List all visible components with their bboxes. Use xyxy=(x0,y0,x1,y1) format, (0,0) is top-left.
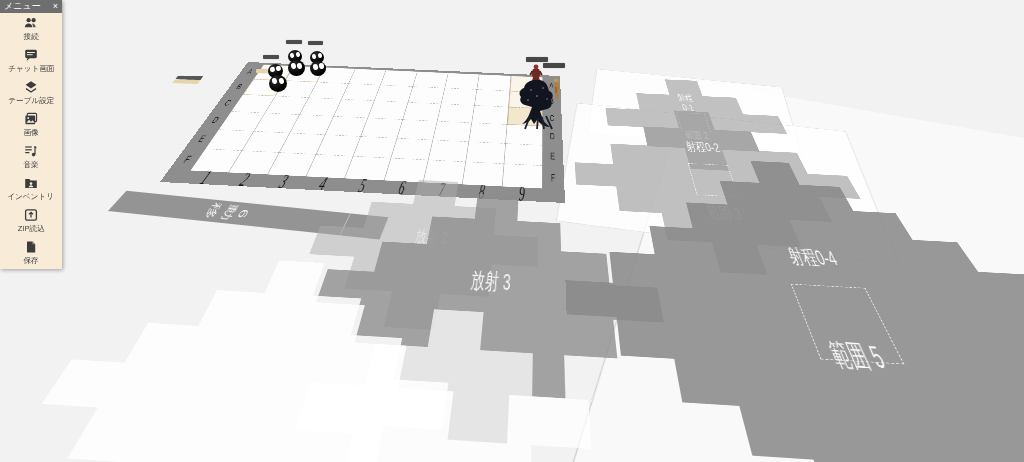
board-cell[interactable] xyxy=(463,162,504,186)
token-eye-icon xyxy=(276,66,282,72)
menu-item-zip-load[interactable]: ZIP読込 xyxy=(0,205,62,237)
menu-item-label: テーブル設定 xyxy=(8,95,54,105)
row-label: D xyxy=(210,115,222,125)
row-label: F xyxy=(551,171,556,183)
board-cell[interactable] xyxy=(428,140,469,162)
tag-cream-strip xyxy=(172,80,200,84)
board-cell[interactable] xyxy=(361,118,403,138)
menu-item-inventory[interactable]: インベントリ xyxy=(0,173,62,205)
menu-item-label: 接続 xyxy=(23,31,38,41)
board-cell[interactable] xyxy=(472,106,508,125)
token-eye-icon xyxy=(290,63,296,70)
token-name-tag[interactable] xyxy=(526,57,548,62)
token-name-tag[interactable] xyxy=(308,41,323,45)
black-ball-token[interactable] xyxy=(288,60,305,76)
board-cell[interactable] xyxy=(475,90,510,108)
game-board[interactable]: A B C D E F A B C D E F 1 2 3 4 5 6 xyxy=(160,62,565,203)
menu-item-images[interactable]: 画像 xyxy=(0,109,62,141)
token-eye-icon xyxy=(295,52,300,58)
zip-upload-icon xyxy=(24,208,38,222)
menu-item-music[interactable]: 音楽 xyxy=(0,141,62,173)
board-cell[interactable] xyxy=(397,120,437,140)
board-cell[interactable] xyxy=(504,144,542,166)
row-label: C xyxy=(222,98,233,107)
menu-item-label: 保存 xyxy=(23,255,38,265)
token-eye-icon xyxy=(270,66,276,72)
row-label: E xyxy=(196,133,208,144)
save-icon xyxy=(24,240,38,254)
token-eye-icon xyxy=(290,52,295,58)
board-cell[interactable] xyxy=(391,138,433,160)
row-label: E xyxy=(550,150,555,161)
token-eye-icon xyxy=(312,64,318,71)
menu-titlebar[interactable]: メニュー × xyxy=(0,0,62,13)
menu-title: メニュー xyxy=(4,0,41,13)
board-cell[interactable] xyxy=(469,123,507,144)
token-eye-icon xyxy=(271,78,278,85)
token-name-tag[interactable] xyxy=(286,40,302,44)
menu-item-label: ZIP読込 xyxy=(17,223,44,233)
menu-item-label: インベントリ xyxy=(8,191,55,201)
token-eye-icon xyxy=(278,77,285,84)
board-cell[interactable] xyxy=(375,85,413,102)
token-eye-icon xyxy=(297,62,303,69)
board-cell[interactable] xyxy=(466,142,505,164)
black-ball-token[interactable] xyxy=(310,61,326,76)
menu-item-label: 音楽 xyxy=(23,159,38,169)
board-cell[interactable] xyxy=(441,88,477,106)
board-cell[interactable] xyxy=(413,72,449,88)
board-cell[interactable] xyxy=(354,137,398,159)
board-cell[interactable] xyxy=(408,87,445,105)
inventory-icon xyxy=(24,176,38,190)
token-name-tag[interactable] xyxy=(543,63,565,68)
black-ball-token[interactable] xyxy=(269,75,287,92)
board-cell[interactable] xyxy=(403,103,442,122)
board-cell[interactable] xyxy=(445,73,480,89)
app-window: A B C D E F A B C D E F 1 2 3 4 5 6 xyxy=(0,0,1024,462)
board-cell[interactable] xyxy=(368,101,408,120)
music-icon xyxy=(24,144,38,158)
board-cell[interactable] xyxy=(502,164,542,188)
burst-3-label: 放射 3 xyxy=(469,268,511,296)
menu-item-label: 画像 xyxy=(23,127,38,137)
board-cell[interactable] xyxy=(437,104,474,123)
board-cell[interactable] xyxy=(477,75,511,91)
chat-icon xyxy=(24,48,38,62)
token-name-tag[interactable] xyxy=(263,55,279,59)
range-0-4-label: 射程0-4 xyxy=(785,245,842,271)
layers-icon xyxy=(24,80,38,94)
close-icon[interactable]: × xyxy=(53,2,58,11)
row-label: A xyxy=(245,68,254,76)
menu-item-save[interactable]: 保存 xyxy=(0,237,62,269)
menu-item-table-settings[interactable]: テーブル設定 xyxy=(0,77,62,109)
token-eye-icon xyxy=(312,53,317,59)
image-icon xyxy=(24,112,38,126)
token-eye-icon xyxy=(318,63,324,70)
tan-adventurer-token[interactable] xyxy=(551,78,561,104)
board-cell[interactable] xyxy=(381,70,418,86)
menu-item-connect[interactable]: 接続 xyxy=(0,13,62,45)
row-label: F xyxy=(181,153,193,165)
table-edge-tag[interactable] xyxy=(172,76,203,84)
range-0-2-label: 射程0-2 xyxy=(684,139,722,154)
token-eye-icon xyxy=(317,53,322,59)
menu-panel: メニュー × 接続 チャット画面 テーブル設定 xyxy=(0,0,62,269)
row-label: B xyxy=(234,82,244,90)
movement-bar-label: 移動6 xyxy=(201,205,252,218)
board-cell[interactable] xyxy=(384,158,428,182)
people-icon xyxy=(24,16,38,30)
menu-item-label: チャット画面 xyxy=(8,63,54,73)
menu-item-chat[interactable]: チャット画面 xyxy=(0,45,62,77)
board-cell[interactable] xyxy=(433,121,472,141)
